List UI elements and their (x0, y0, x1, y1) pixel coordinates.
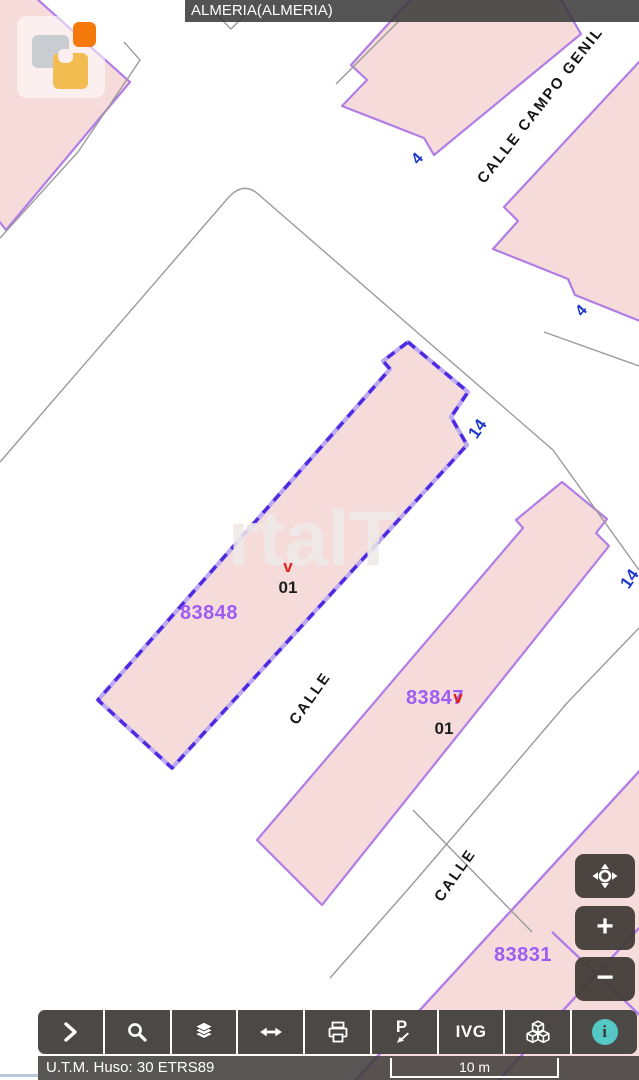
bottom-left-corner (0, 1056, 38, 1080)
logo-white-square-icon (58, 49, 73, 63)
locate-icon (592, 863, 618, 889)
street-label-calle-1: CALLE (286, 669, 334, 728)
info-glyph: i (602, 1022, 607, 1042)
parcel-campo-genil-2[interactable] (493, 50, 639, 345)
municipality-title: ALMERIA(ALMERIA) (191, 2, 333, 19)
extent-button[interactable] (238, 1010, 303, 1054)
red-point-mark-1: v (283, 557, 293, 576)
parcel-campo-genil-1[interactable] (342, 0, 581, 155)
parcel-label-83848: 83848 (180, 602, 238, 624)
printer-icon (326, 1020, 350, 1044)
search-button[interactable] (105, 1010, 170, 1054)
scale-bar: 10 m (390, 1058, 559, 1078)
info-button[interactable]: i (572, 1010, 637, 1054)
street-line-cross (413, 810, 532, 932)
house-number-14a: 14 (464, 415, 491, 442)
unit-label-01b: 01 (435, 719, 454, 738)
logo-orange-square-icon (73, 22, 96, 47)
locate-button[interactable] (575, 854, 635, 898)
info-icon: i (592, 1019, 618, 1045)
search-icon (125, 1020, 149, 1044)
municipality-bar: ALMERIA(ALMERIA) (185, 0, 639, 22)
house-number-4a: 4 (408, 150, 427, 168)
expand-toolbar-button[interactable] (38, 1010, 103, 1054)
catastro-logo[interactable] (17, 16, 105, 98)
house-number-4b: 4 (572, 302, 591, 320)
ivg-button[interactable]: IVG (439, 1010, 504, 1054)
unit-label-01a: 01 (279, 578, 298, 597)
model-3d-button[interactable] (505, 1010, 570, 1054)
zoom-in-icon: + (596, 912, 614, 942)
house-number-14b: 14 (616, 565, 639, 592)
watermark-text: rtalT (228, 494, 397, 582)
layers-icon (191, 1019, 217, 1045)
cubes-icon (524, 1018, 552, 1046)
street-line-below-strip2 (544, 332, 639, 366)
point-info-button[interactable]: P (372, 1010, 437, 1054)
zoom-out-icon: − (596, 963, 614, 993)
zoom-out-button[interactable]: − (575, 957, 635, 1001)
parcel-label-83831: 83831 (494, 944, 552, 966)
ivg-label: IVG (456, 1022, 487, 1042)
chevron-right-icon (58, 1020, 82, 1044)
status-bar: U.T.M. Huso: 30 ETRS89 10 m (38, 1056, 639, 1080)
point-p-glyph: P (396, 1017, 407, 1037)
bottom-toolbar: P IVG i (38, 1010, 637, 1054)
double-arrow-icon (258, 1019, 284, 1045)
utm-reference-text: U.T.M. Huso: 30 ETRS89 (46, 1056, 214, 1080)
layers-button[interactable] (172, 1010, 237, 1054)
scale-label: 10 m (459, 1055, 490, 1079)
app-screen: rtalT CALLE CAMPO GENIL CALLE CALLE 4 4 … (0, 0, 639, 1080)
print-button[interactable] (305, 1010, 370, 1054)
zoom-in-button[interactable]: + (575, 906, 635, 950)
map-edge-line (0, 1074, 38, 1077)
map-canvas[interactable]: rtalT CALLE CAMPO GENIL CALLE CALLE 4 4 … (0, 0, 639, 1080)
red-point-mark-2: v (453, 688, 463, 707)
